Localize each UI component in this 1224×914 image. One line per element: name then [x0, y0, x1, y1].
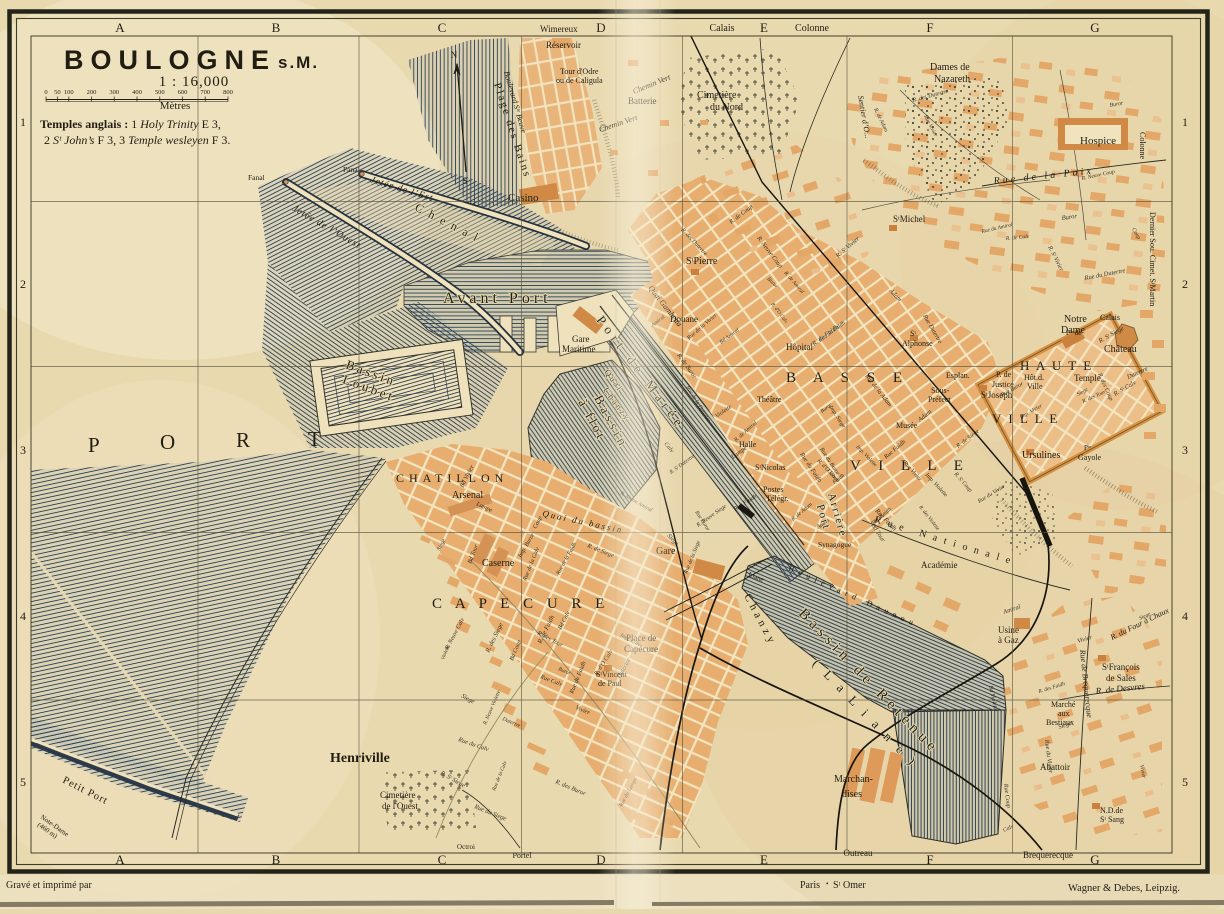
svg-text:B: B: [272, 852, 281, 867]
svg-text:P: P: [88, 433, 100, 457]
svg-text:C: C: [438, 20, 447, 35]
svg-text:Cimetière: Cimetière: [380, 790, 416, 800]
svg-text:B: B: [272, 20, 281, 35]
svg-text:Tour d'Odre: Tour d'Odre: [560, 67, 599, 76]
svg-text:100: 100: [64, 89, 74, 96]
svg-text:SᵗMichel: SᵗMichel: [893, 214, 926, 224]
svg-text:O: O: [160, 430, 175, 454]
svg-text:G: G: [1090, 20, 1099, 35]
svg-text:Préfect: Préfect: [928, 395, 951, 404]
svg-text:Cimetière: Cimetière: [697, 90, 737, 101]
svg-text:Colonne: Colonne: [1138, 132, 1147, 160]
svg-text:Octroi: Octroi: [457, 843, 475, 851]
svg-text:Hôt.d.: Hôt.d.: [1024, 373, 1044, 382]
svg-text:V I L L E: V I L L E: [992, 411, 1059, 426]
svg-text:Gravé et imprimé par: Gravé et imprimé par: [6, 880, 92, 891]
svg-text:ou de Caligula: ou de Caligula: [556, 76, 603, 85]
svg-text:à Gaz: à Gaz: [998, 635, 1019, 645]
svg-text:F: F: [926, 852, 933, 867]
svg-text:Outreau: Outreau: [844, 848, 873, 858]
svg-text:200: 200: [87, 89, 97, 96]
svg-text:S: S: [462, 176, 467, 186]
svg-text:Réservoir: Réservoir: [546, 40, 581, 50]
svg-text:N.D.de: N.D.de: [1100, 806, 1124, 815]
svg-text:G: G: [1090, 852, 1099, 867]
svg-text:3: 3: [1182, 443, 1188, 457]
svg-text:Brequerecque: Brequerecque: [1023, 850, 1073, 860]
svg-text:Arsenal: Arsenal: [452, 490, 483, 501]
svg-text:C A P E C U R E: C A P E C U R E: [432, 596, 609, 612]
svg-text:Nazareth: Nazareth: [934, 74, 970, 85]
svg-text:de l'Ouest: de l'Ouest: [382, 801, 418, 811]
svg-text:2: 2: [1182, 277, 1188, 291]
svg-text:SᵗFrançois: SᵗFrançois: [1102, 662, 1140, 672]
svg-text:E: E: [760, 20, 768, 35]
svg-text:1: 1: [1182, 115, 1188, 129]
svg-text:Pᵗᵉ de: Pᵗᵉ de: [1066, 329, 1081, 337]
svg-text:0: 0: [44, 89, 47, 96]
svg-text:Abattoir: Abattoir: [1040, 762, 1070, 772]
svg-text:Caserne: Caserne: [482, 558, 515, 569]
svg-text:SᵗNicolas: SᵗNicolas: [755, 463, 785, 472]
svg-text:A: A: [115, 852, 125, 867]
svg-text:T: T: [308, 427, 321, 451]
svg-text:3: 3: [20, 443, 26, 457]
svg-text:SᵗPierre: SᵗPierre: [686, 256, 718, 267]
svg-text:Calais: Calais: [710, 23, 735, 34]
svg-text:500: 500: [155, 89, 165, 96]
svg-text:Fanal: Fanal: [343, 165, 360, 174]
svg-text:F: F: [926, 20, 933, 35]
svg-text:Hospice: Hospice: [1080, 135, 1116, 147]
svg-text:Wimereux: Wimereux: [540, 24, 578, 34]
svg-text:1 : 16,000: 1 : 16,000: [159, 74, 229, 90]
svg-text:Usine: Usine: [998, 625, 1019, 635]
svg-text:R: R: [236, 428, 250, 452]
svg-text:Ville: Ville: [1027, 382, 1043, 391]
svg-text:C: C: [438, 852, 447, 867]
svg-text:Sᵗ: Sᵗ: [910, 329, 916, 338]
svg-text:800: 800: [223, 89, 233, 96]
svg-text:Bestiaux: Bestiaux: [1046, 718, 1074, 727]
svg-text:E: E: [760, 852, 768, 867]
svg-text:Paris: Paris: [800, 880, 820, 891]
svg-text:aux: aux: [1058, 709, 1070, 718]
svg-text:Justice: Justice: [992, 380, 1014, 389]
svg-text:5: 5: [1182, 775, 1188, 789]
svg-text:Mètres: Mètres: [160, 100, 191, 112]
svg-text:Portel: Portel: [512, 851, 532, 860]
svg-text:Pᵗᵉ: Pᵗᵉ: [1084, 444, 1091, 452]
svg-text:Sous-: Sous-: [931, 386, 950, 395]
svg-text:Télégr.: Télégr.: [766, 494, 788, 503]
svg-text:N: N: [451, 50, 458, 60]
svg-text:Gayole: Gayole: [1078, 453, 1102, 462]
svg-text:4: 4: [1182, 609, 1188, 623]
svg-text:Avant Port: Avant Port: [443, 290, 552, 307]
svg-text:Sᵗ Omer: Sᵗ Omer: [833, 880, 866, 891]
svg-text:Esplan.: Esplan.: [946, 371, 970, 380]
svg-text:Calais: Calais: [1100, 313, 1120, 322]
svg-text:Dames de: Dames de: [930, 62, 970, 73]
svg-text:Colonne: Colonne: [795, 23, 829, 34]
svg-text:A: A: [115, 20, 125, 35]
svg-text:Dernier Sou. Cimet. SᵗMartin: Dernier Sou. Cimet. SᵗMartin: [1148, 212, 1157, 306]
svg-text:Château: Château: [1104, 344, 1137, 355]
svg-text:Marché: Marché: [1051, 700, 1076, 709]
svg-text:V I L L E: V I L L E: [850, 458, 970, 474]
svg-text:Temples anglais : 1 Holy Trini: Temples anglais : 1 Holy Trinity E 3,: [40, 117, 221, 131]
svg-text:2 Sᵗ John’s F 3, 3 Temple wesl: 2 Sᵗ John’s F 3, 3 Temple wesleyen F 3.: [44, 133, 230, 147]
svg-text:Henriville: Henriville: [330, 751, 390, 766]
svg-text:Marchan-: Marchan-: [834, 774, 873, 785]
svg-text:Théâtre: Théâtre: [757, 395, 782, 404]
svg-text:Casino: Casino: [508, 192, 539, 204]
svg-text:Halle: Halle: [739, 440, 757, 449]
svg-text:Maritime: Maritime: [562, 344, 596, 354]
svg-text:600: 600: [178, 89, 188, 96]
svg-text:H A U T E: H A U T E: [1020, 358, 1093, 373]
svg-text:2: 2: [20, 277, 26, 291]
svg-text:4: 4: [20, 609, 26, 623]
svg-text:50: 50: [54, 89, 61, 96]
svg-text:Postes: Postes: [763, 485, 783, 494]
svg-text:Temple: Temple: [1074, 373, 1101, 383]
svg-text:B A S S E: B A S S E: [786, 370, 909, 386]
svg-text:SᵗJoseph: SᵗJoseph: [981, 390, 1013, 400]
svg-text:Fanal: Fanal: [248, 173, 265, 182]
svg-text:1: 1: [20, 115, 26, 129]
svg-text:s.M.: s.M.: [278, 53, 319, 72]
svg-text:Hôpital: Hôpital: [786, 342, 813, 352]
svg-text:300: 300: [109, 89, 119, 96]
svg-text:Sᵗ Sang: Sᵗ Sang: [1100, 815, 1124, 824]
svg-text:700: 700: [200, 89, 210, 96]
svg-text:P. de: P. de: [996, 370, 1012, 379]
svg-text:du Nord: du Nord: [710, 102, 743, 113]
svg-text:Académie: Académie: [921, 560, 957, 570]
svg-text:5: 5: [20, 775, 26, 789]
svg-text:CHATILLON: CHATILLON: [396, 471, 508, 485]
svg-text:Ursulines: Ursulines: [1022, 450, 1060, 461]
svg-text:Gare: Gare: [572, 334, 590, 344]
svg-text:Notre: Notre: [1064, 314, 1087, 325]
svg-text:Alphonse: Alphonse: [902, 339, 933, 348]
svg-text:Wagner & Debes, Leipzig.: Wagner & Debes, Leipzig.: [1068, 883, 1180, 894]
svg-text:Musée: Musée: [896, 421, 918, 430]
svg-text:400: 400: [132, 89, 142, 96]
svg-text:BOULOGNE: BOULOGNE: [64, 45, 276, 75]
svg-text:dises: dises: [842, 789, 862, 800]
